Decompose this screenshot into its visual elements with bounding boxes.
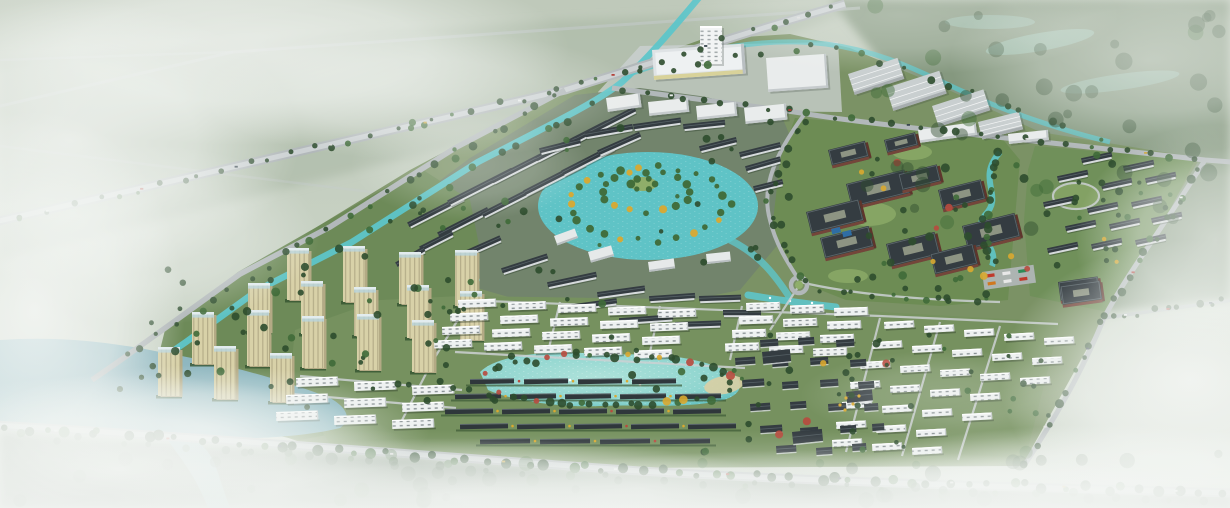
- aerial-masterplan-rendering: [0, 0, 1230, 508]
- aerial-rendering-stage: [0, 0, 1230, 508]
- fog-layer: [0, 0, 1230, 508]
- edge-veil: [0, 0, 1230, 508]
